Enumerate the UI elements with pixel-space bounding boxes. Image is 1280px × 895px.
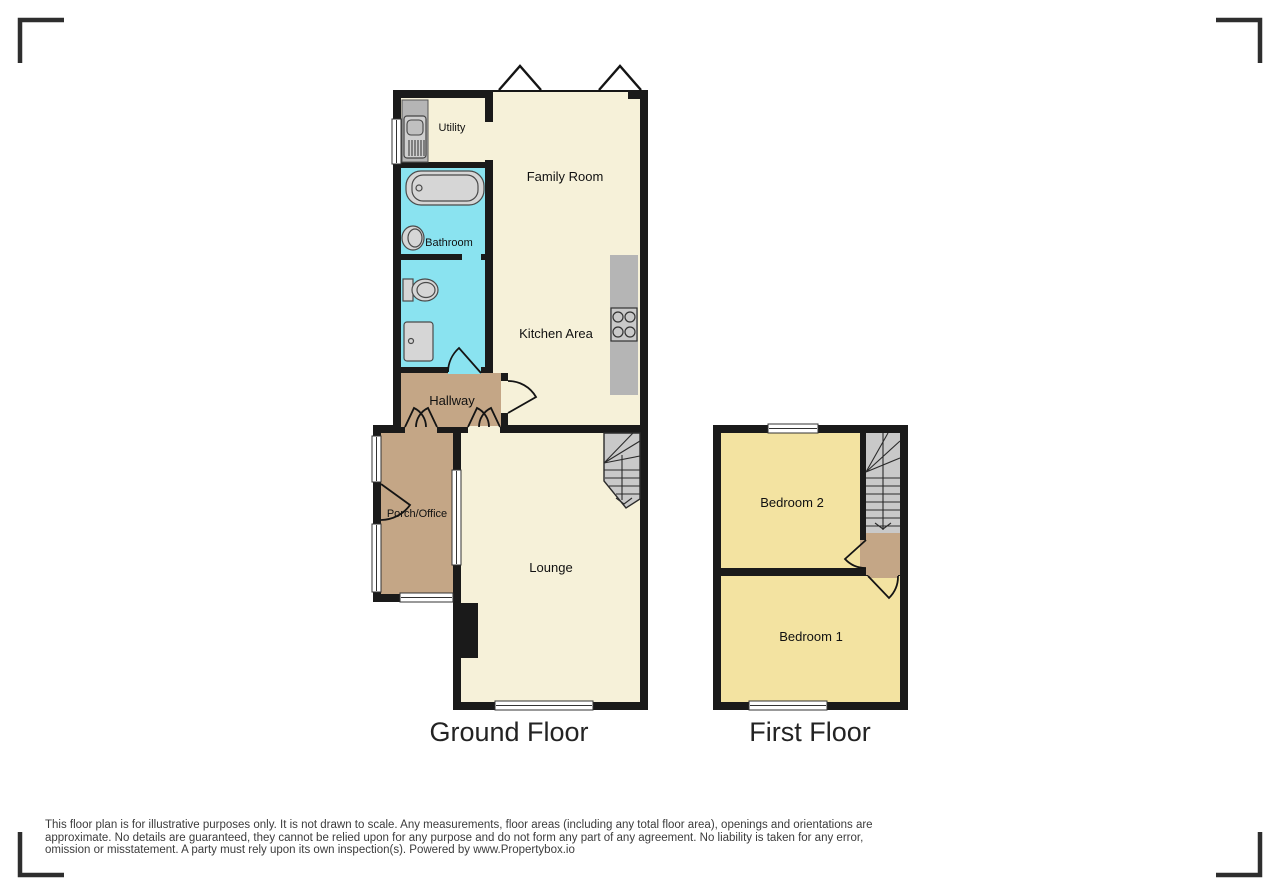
room-label-family-room: Family Room	[527, 169, 604, 184]
room-label-bathroom: Bathroom	[425, 237, 473, 249]
crop-corner-top-left-icon	[20, 20, 64, 63]
floor-title-ground: Ground Floor	[429, 717, 588, 747]
room-label-utility: Utility	[439, 122, 466, 134]
room-label-kitchen-area: Kitchen Area	[519, 326, 593, 341]
washing-machine-icon	[402, 100, 428, 162]
crop-corner-bottom-right-icon	[1216, 832, 1260, 875]
hob-icon	[611, 308, 637, 341]
opening-utility-family	[484, 122, 494, 160]
disclaimer-line: omission or misstatement. A party must r…	[45, 844, 873, 857]
disclaimer-line: This floor plan is for illustrative purp…	[45, 819, 873, 832]
opening-hallway-kitchen	[501, 381, 508, 413]
gable-mark-icon	[499, 66, 541, 90]
room-label-lounge: Lounge	[529, 560, 572, 575]
gable-mark-icon	[599, 66, 641, 90]
window	[372, 436, 381, 482]
room-label-bedroom-2: Bedroom 2	[760, 495, 824, 510]
window	[749, 701, 827, 710]
opening-hallway-porch	[405, 426, 437, 433]
window	[372, 524, 381, 592]
opening-landing-bedroom1	[868, 571, 898, 578]
shower-tray-icon	[404, 322, 433, 361]
toilet-icon	[403, 279, 438, 301]
window	[452, 470, 461, 565]
opening-hallway-lounge	[468, 426, 500, 433]
chimney-breast	[453, 603, 478, 658]
window	[392, 119, 401, 164]
ground-floor-plan: Utility Family Room Bathroom Kitchen Are…	[372, 66, 648, 747]
floor-plan-canvas: Utility Family Room Bathroom Kitchen Are…	[0, 0, 1280, 895]
window	[495, 701, 593, 710]
window	[400, 593, 453, 602]
crop-corner-top-right-icon	[1216, 20, 1260, 63]
floor-plan-page: Utility Family Room Bathroom Kitchen Are…	[0, 0, 1280, 895]
bathtub-icon	[406, 171, 484, 205]
opening-bathroom-wc	[462, 253, 481, 261]
disclaimer-line: approximate. No details are guaranteed, …	[45, 832, 873, 845]
room-label-hallway: Hallway	[429, 393, 475, 408]
landing	[866, 533, 900, 575]
room-label-porch-office: Porch/Office	[387, 508, 447, 520]
room-label-bedroom-1: Bedroom 1	[779, 629, 843, 644]
floor-title-first: First Floor	[749, 717, 871, 747]
first-floor-plan: Bedroom 2 Bedroom 1 First Floor	[713, 424, 908, 747]
window	[768, 424, 818, 433]
disclaimer-text: This floor plan is for illustrative purp…	[45, 819, 873, 857]
wall-stub	[628, 90, 648, 99]
wash-basin-icon	[402, 226, 424, 250]
